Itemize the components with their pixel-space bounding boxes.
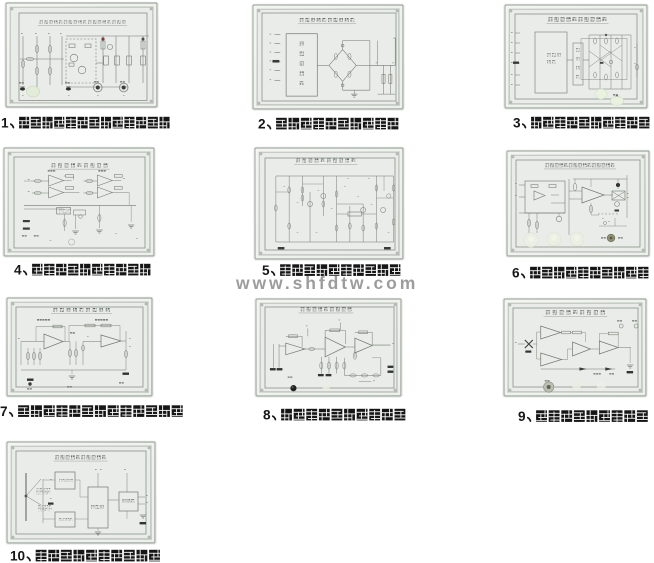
svg-text:2: 2 xyxy=(258,117,266,132)
svg-text:www.shfdtw.com: www.shfdtw.com xyxy=(235,273,418,293)
svg-text:3: 3 xyxy=(513,116,521,131)
svg-text:9: 9 xyxy=(518,409,526,424)
svg-text:4: 4 xyxy=(14,263,22,278)
svg-text:7: 7 xyxy=(0,404,8,419)
svg-text:8: 8 xyxy=(263,408,271,423)
svg-text:1: 1 xyxy=(1,116,9,131)
svg-text:6: 6 xyxy=(512,266,520,281)
svg-text:10: 10 xyxy=(10,549,25,563)
